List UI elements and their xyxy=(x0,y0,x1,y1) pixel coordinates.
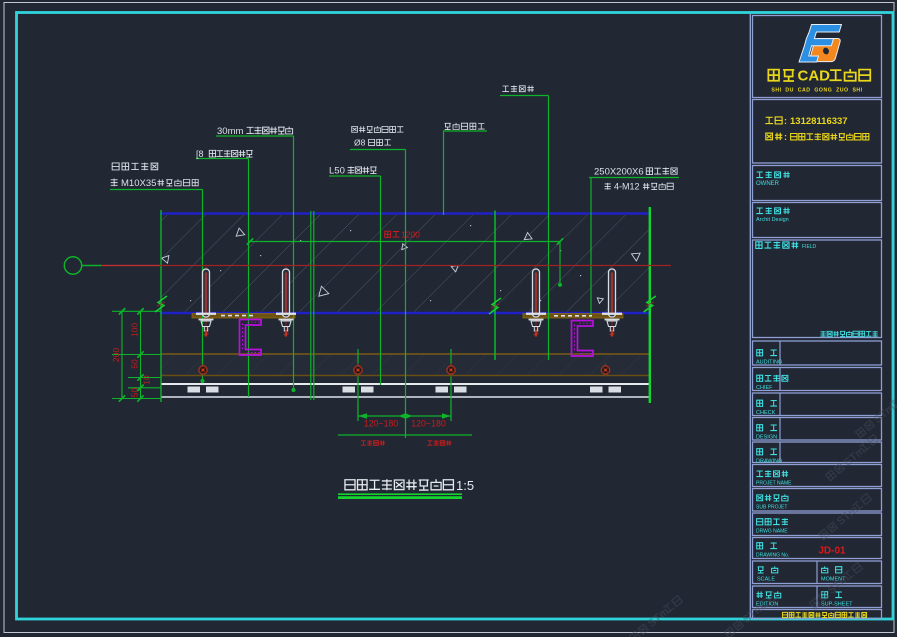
svg-text:1200: 1200 xyxy=(401,230,420,240)
svg-text:CHIEF: CHIEF xyxy=(756,385,773,391)
svg-text:PROJET NAME: PROJET NAME xyxy=(756,481,792,487)
svg-text:30mm: 30mm xyxy=(217,126,243,137)
svg-text:10: 10 xyxy=(142,375,152,385)
svg-text:Archit Design: Archit Design xyxy=(756,217,789,223)
svg-text::: : xyxy=(784,132,787,142)
svg-text:DESIGN: DESIGN xyxy=(756,435,777,441)
svg-text:1:5: 1:5 xyxy=(456,478,474,493)
svg-text:L50: L50 xyxy=(329,166,345,177)
svg-text:SUB PROJET: SUB PROJET xyxy=(756,505,787,511)
svg-text:120~180: 120~180 xyxy=(411,419,446,429)
svg-text:M10X35: M10X35 xyxy=(121,178,156,189)
svg-text:SUP-SHEET: SUP-SHEET xyxy=(821,602,853,608)
svg-text:50: 50 xyxy=(130,388,140,398)
svg-text:13128116337: 13128116337 xyxy=(790,116,848,127)
svg-text:50: 50 xyxy=(130,359,140,369)
svg-text:CHECK: CHECK xyxy=(756,410,776,416)
svg-text:JD-01: JD-01 xyxy=(818,546,846,557)
svg-text:SHI DU CAD GONG ZUO SHI: SHI DU CAD GONG ZUO SHI xyxy=(771,88,862,94)
svg-text::: : xyxy=(784,116,787,126)
svg-text:DRAWING: DRAWING xyxy=(756,459,782,465)
svg-text:OWNER: OWNER xyxy=(756,181,780,187)
svg-text:4-M12: 4-M12 xyxy=(614,182,640,192)
svg-text:CAD: CAD xyxy=(798,68,831,85)
svg-text:250X200X6: 250X200X6 xyxy=(594,167,644,178)
svg-text:100: 100 xyxy=(130,323,140,337)
svg-text:AUDITING: AUDITING xyxy=(756,360,782,366)
svg-text:SCALE: SCALE xyxy=(757,577,775,583)
svg-text:Ø8: Ø8 xyxy=(354,138,366,148)
svg-text:DRAWING No.: DRAWING No. xyxy=(756,553,789,559)
svg-text:DRWG NAME: DRWG NAME xyxy=(756,529,788,535)
svg-text:200: 200 xyxy=(111,348,121,362)
svg-text:120~180: 120~180 xyxy=(364,419,399,429)
svg-text:FIELD: FIELD xyxy=(802,244,817,250)
svg-text:[8: [8 xyxy=(196,149,204,159)
